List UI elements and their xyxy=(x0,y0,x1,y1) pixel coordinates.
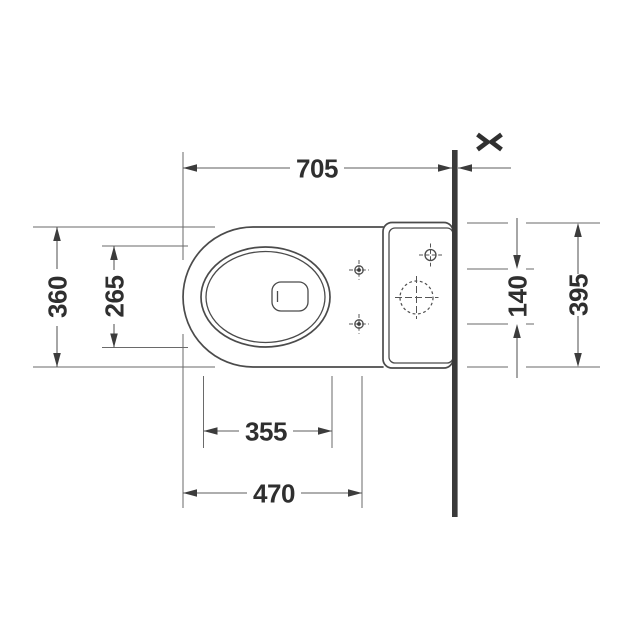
dimension-705: 705 xyxy=(183,152,511,260)
dim-label-705: 705 xyxy=(296,154,338,184)
arrow-right xyxy=(438,164,452,172)
cistern-outer xyxy=(383,223,453,369)
dimension-140: 140 xyxy=(467,218,534,378)
toilet-technical-drawing: 705 360 265 355 470 140 xyxy=(0,0,640,640)
seat-fixing-hole-bottom-icon xyxy=(349,314,369,334)
dimension-395: 395 xyxy=(467,223,600,367)
dim-label-140: 140 xyxy=(503,276,533,318)
water-inlet-hole-icon xyxy=(395,276,439,319)
cistern-fixing-hole-icon xyxy=(419,244,442,267)
dim-label-395: 395 xyxy=(564,274,594,316)
break-mark-icon xyxy=(478,135,502,150)
wall-line xyxy=(452,150,458,517)
dim-label-355: 355 xyxy=(245,417,287,447)
dim-label-265: 265 xyxy=(100,276,130,318)
arrow-left xyxy=(183,164,197,172)
drawing-canvas: 705 360 265 355 470 140 xyxy=(0,0,640,640)
seat-fixing-hole-top-icon xyxy=(349,260,369,280)
dimension-355: 355 xyxy=(204,376,333,448)
dim-label-470: 470 xyxy=(253,479,295,509)
rim-outer-oval xyxy=(201,247,330,347)
rim-inner-oval xyxy=(206,252,325,343)
dim-label-360: 360 xyxy=(43,276,73,318)
bowl-outline xyxy=(183,227,383,367)
cistern-outline xyxy=(383,223,453,369)
cistern-inner xyxy=(389,228,453,363)
dimension-265: 265 xyxy=(100,246,189,348)
arrow-wall-back xyxy=(458,164,472,172)
